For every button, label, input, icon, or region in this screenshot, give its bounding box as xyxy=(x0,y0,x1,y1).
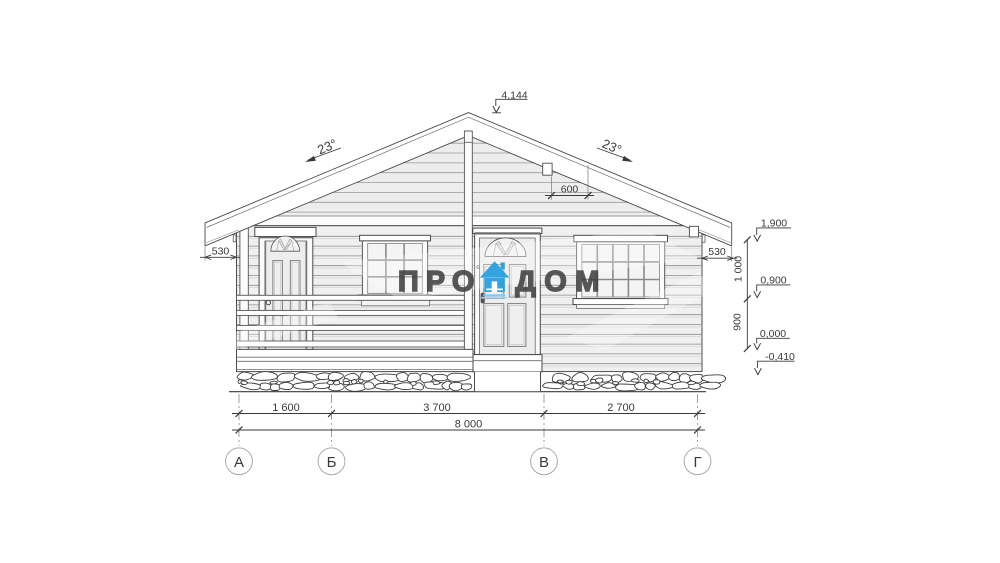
svg-text:ДОМ: ДОМ xyxy=(515,266,608,298)
svg-text:600: 600 xyxy=(561,184,579,196)
svg-text:3 700: 3 700 xyxy=(423,402,451,414)
svg-text:1 600: 1 600 xyxy=(272,402,300,414)
svg-text:А: А xyxy=(234,454,244,471)
svg-text:Г: Г xyxy=(693,454,701,471)
svg-text:В: В xyxy=(539,454,549,471)
svg-text:8 000: 8 000 xyxy=(455,418,483,430)
svg-text:Б: Б xyxy=(327,454,337,471)
svg-text:ПРО: ПРО xyxy=(398,266,482,298)
svg-text:2 700: 2 700 xyxy=(607,402,635,414)
svg-text:23°: 23° xyxy=(315,136,339,157)
svg-text:900: 900 xyxy=(731,313,743,331)
svg-text:530: 530 xyxy=(708,246,726,258)
svg-text:530: 530 xyxy=(212,245,230,257)
svg-text:23°: 23° xyxy=(600,136,624,157)
svg-text:1 000: 1 000 xyxy=(732,256,744,282)
